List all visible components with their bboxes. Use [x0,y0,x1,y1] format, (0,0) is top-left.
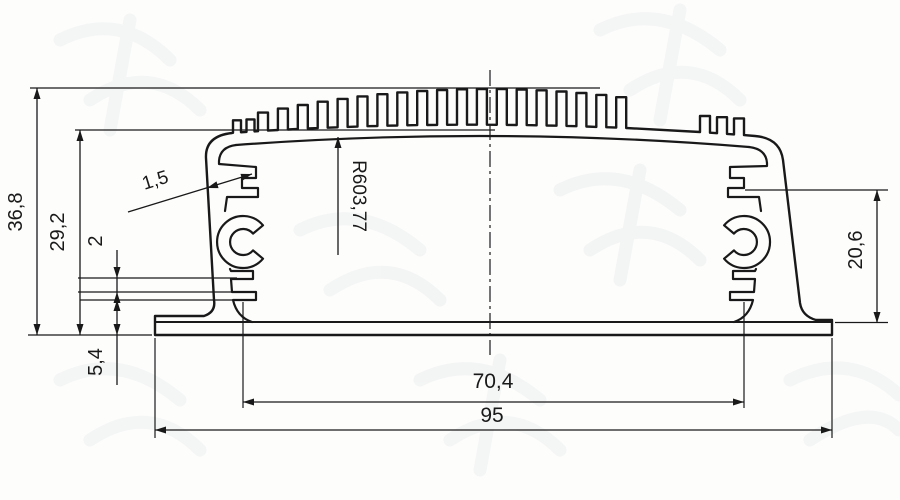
left-screw-port [217,216,263,268]
technical-drawing-canvas: 36,8 29,2 2 5,4 1,5 R603,77 20,6 70,4 95 [0,0,900,500]
dim-overall-width: 95 [480,404,503,427]
top-plate-inner-line [236,136,749,147]
right-wall-pcb-rails [730,269,756,322]
dim-base-height: 5,4 [85,348,107,376]
watermark-strokes [60,10,899,470]
dim-inner-width: 70,4 [473,370,514,393]
profile-drawing: 36,8 29,2 2 5,4 1,5 R603,77 20,6 70,4 95 [0,0,900,500]
dim-right-inner-height: 20,6 [845,231,867,270]
dim-pcb-slot-gap: 2 [85,235,107,246]
right-wall-inner-with-boss [728,147,767,211]
dim-wall-thickness: 1,5 [140,167,171,195]
right-screw-port [724,216,770,268]
dim-inner-height: 29,2 [47,213,69,252]
dim-overall-height: 36,8 [5,193,27,232]
dim-top-radius: R603,77 [348,160,369,232]
